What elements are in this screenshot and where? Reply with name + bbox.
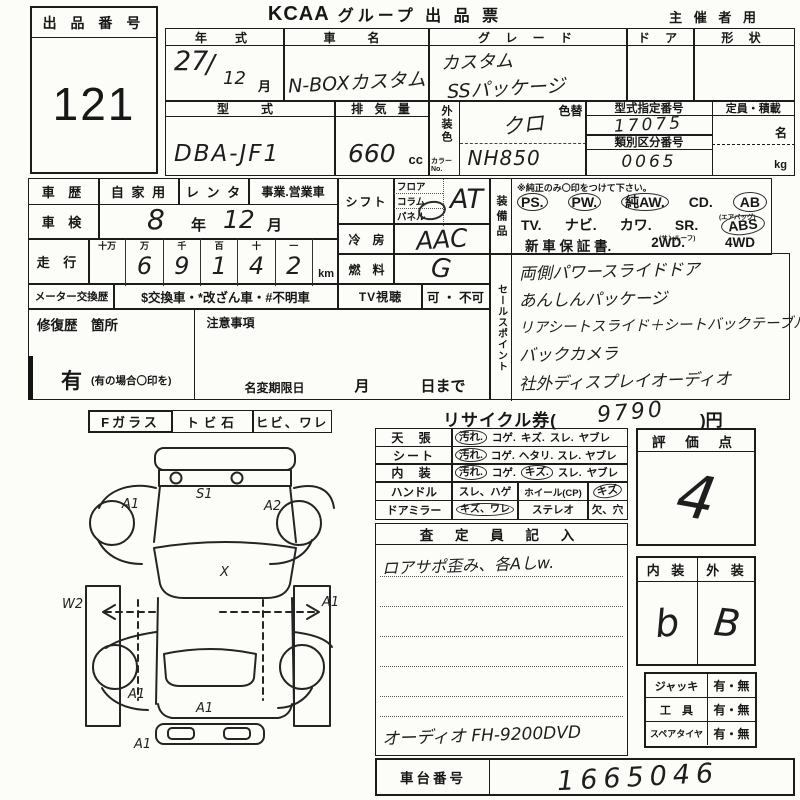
repair-hint: (有の場合〇印を) [91, 373, 172, 388]
exterior-grade-cell: B [698, 582, 756, 664]
cabin-left-side [156, 598, 158, 704]
equip-2wd: 2WD. [651, 235, 685, 255]
cond-opt: ヤブレ [587, 465, 619, 480]
month-unit: 月 [258, 76, 271, 95]
name-change-until: 日まで [421, 375, 466, 396]
model-header: 型 式 [165, 100, 335, 117]
assessor-rule [380, 636, 623, 637]
door-header: ド ア [626, 28, 695, 46]
digit-value: 2 [276, 252, 312, 280]
damage-code-left-side: W2 [62, 597, 83, 612]
equipment-row1: PS. PW. 純AW. CD. AB [517, 192, 767, 212]
assessor-header: 査 定 員 記 入 [376, 524, 627, 545]
door-cell [626, 45, 695, 102]
assessor-box: 査 定 員 記 入 ロアサポ歪み、各Aしw. オーディオ FH-9200DVD [375, 523, 628, 756]
equipment-row3: 新 車 保 証 書. 2WD. 4WD [525, 235, 755, 255]
fuel-label: 燃 料 [338, 253, 395, 285]
displacement-header: 排 気 量 [335, 100, 430, 117]
cond-opt: ヤブレ [579, 430, 611, 445]
history-private: 自 家 用 [98, 178, 180, 205]
digit-col: 十万 [89, 239, 126, 286]
repair-yes: 有 [61, 365, 82, 395]
equipment-label: 装備品 [491, 179, 512, 256]
capacity-weight-cell: kg [712, 143, 796, 176]
grade-header: グ レ ー ド [428, 28, 628, 46]
cond-opt-circled: 汚れ. [455, 465, 487, 479]
front-right-fender [294, 486, 334, 508]
front-glass-label: Fガラス [88, 410, 173, 433]
inspection-label: 車 検 [28, 204, 100, 240]
organizer-label: 主 催 者 用 [645, 7, 760, 26]
cond-interior-label: 内 装 [375, 463, 453, 482]
auction-sheet: 出 品 番 号 121 KCAA グループ 出 品 票 主 催 者 用 年 式 … [0, 0, 800, 800]
capacity-person-unit: 名 [775, 124, 787, 141]
sheet-title-text: グループ 出 品 票 [338, 2, 502, 26]
year-slash: / [206, 50, 215, 80]
exterior-color-label-cell: 外装色 カラーNo. [428, 100, 460, 176]
assessor-rule [380, 716, 623, 717]
cond-mirror-options: キズ、ワレ [451, 500, 519, 520]
mileage-digit-columns: 十万 万 6 千 9 百 1 十 4 一 2 [89, 239, 313, 286]
chassis-box: 車台番号 1665046 [375, 758, 795, 796]
auction-number-label: 出 品 番 号 [32, 8, 156, 38]
rating-box: 評 価 点 4 [636, 428, 756, 546]
interior-grade-value: b [653, 600, 682, 646]
exterior-color-cell: 色替 クロ NH850 [459, 100, 587, 176]
year-header: 年 式 [165, 28, 285, 46]
car-name-header: 車 名 [283, 28, 430, 46]
rating-label: 評 価 点 [638, 430, 754, 452]
shape-header: 形 状 [693, 28, 795, 46]
jack-row: ジャッキ 有・無 [646, 674, 755, 698]
sales-item: あんしんパッケージ [519, 285, 668, 312]
cond-ceiling-label: 天 張 [375, 428, 453, 447]
cowl-circle-left [171, 473, 182, 484]
digit-value: 6 [126, 252, 162, 280]
sales-points-label: セールスポイント [491, 254, 512, 401]
tools-value: 有・無 [708, 698, 755, 721]
repair-label: 修復歴 箇所 [37, 314, 118, 334]
shift-cell: フロア コラム パネル AT [393, 178, 490, 225]
assessor-rule [380, 606, 623, 607]
caution-cell: 注意事項 名変期限日 月 日まで [194, 308, 491, 400]
brand-logo: KCAA [268, 3, 330, 26]
capacity-weight-unit: kg [774, 159, 787, 171]
sheet-title: KCAA グループ 出 品 票 [225, 2, 545, 26]
rear-left-wheel [93, 645, 137, 689]
damage-code-rear-bumper: A1 [133, 737, 151, 752]
accessories-box: ジャッキ 有・無 工 具 有・無 スペアタイヤ 有・無 [644, 672, 757, 748]
year-value: 27 [174, 46, 208, 77]
capacity-person-cell: 名 [712, 115, 796, 145]
assessor-rule [380, 666, 623, 667]
digit-unit: 千 [164, 239, 200, 252]
glass-crack: ヒビ、ワレ [252, 410, 332, 433]
damage-code-right-side: A1 [321, 595, 339, 610]
class-no-cell: 0065 [585, 149, 713, 176]
cond-opt: ヤブレ [585, 448, 617, 463]
car-name-cell: N-BOXカスタム [283, 45, 430, 102]
shift-label: シフト [338, 178, 395, 225]
equipment-row2: TV. ナビ. カワ. SR. ABS [521, 215, 765, 235]
front-bumper [155, 448, 295, 470]
cond-opt: キズ. [521, 430, 545, 445]
rear-right-wheel [280, 645, 324, 689]
digit-value: 4 [238, 252, 274, 280]
cond-ceiling-options: 汚れ. コゲ. キズ. スレ. ヤブレ [451, 428, 628, 447]
jack-value: 有・無 [708, 674, 755, 697]
sales-points-box: セールスポイント 両側パワースライドドア あんしんパッケージ リアシートスライド… [490, 253, 790, 400]
chassis-number: 1665046 [556, 758, 720, 797]
cond-wheel-label: ホイール(CP) [517, 482, 589, 501]
tools-row: 工 具 有・無 [646, 698, 755, 722]
assessor-rule [380, 576, 623, 577]
shift-value: AT [450, 184, 483, 215]
cond-opt: スレ. [558, 465, 582, 480]
sales-item: 社外ディスプレイオーディオ [519, 365, 732, 395]
spare-label: スペアタイヤ [646, 722, 708, 745]
inspection-month-unit: 月 [267, 214, 282, 235]
hood-right-edge [290, 486, 296, 542]
displacement-value: 660 [348, 139, 396, 168]
class-no-value: 0065 [621, 152, 676, 172]
cond-handle-options: スレ、ハゲ [451, 482, 519, 501]
type-no-cell: 17075 [585, 115, 713, 136]
inspection-month: 12 [223, 205, 255, 234]
digit-unit: 十万 [89, 239, 125, 252]
assessor-rule [380, 696, 623, 697]
digit-col: 万 6 [126, 239, 163, 286]
color-no-label: カラーNo. [431, 156, 459, 173]
cond-opt-circled: 汚れ. [455, 448, 487, 462]
auction-number-value: 121 [32, 38, 156, 170]
cond-opt-circled: キズ. [521, 465, 553, 479]
digit-unit: 一 [276, 239, 312, 252]
cond-mirror-label: ドアミラー [375, 500, 453, 520]
assessor-line1: ロアサポ歪み、各Aしw. [382, 549, 555, 579]
grade-box: 内 装 外 装 b B [636, 556, 756, 666]
history-label: 車 歴 [28, 178, 100, 205]
assessor-audio-line: オーディオ FH-9200DVD [382, 718, 582, 750]
mileage-label: 走 行 [28, 238, 90, 285]
shape-cell [693, 45, 795, 102]
equipment-box: 装備品 ※純正のみ〇印をつけて下さい。 PS. PW. 純AW. CD. AB … [490, 178, 772, 255]
digit-col: 一 2 [276, 239, 313, 286]
cond-opt: ヘタリ. [519, 448, 553, 463]
caution-label: 注意事項 [207, 314, 255, 331]
cond-handle-label: ハンドル [375, 482, 453, 501]
meter-label: メーター交換歴 [28, 283, 115, 310]
inspection-year-unit: 年 [191, 214, 206, 235]
name-change-month: 月 [355, 375, 370, 396]
digit-unit: 百 [201, 239, 237, 252]
mileage-grid: 十万 万 6 千 9 百 1 十 4 一 2 km [88, 238, 338, 285]
rear-window [164, 649, 256, 686]
fuel-value: G [430, 253, 453, 285]
displacement-cell: 660 cc [335, 116, 430, 176]
exterior-grade-value: B [712, 600, 743, 646]
left-rocker-panel [86, 586, 120, 726]
equip-sr: SR. [675, 217, 698, 233]
car-damage-diagram: A1 S1 A2 W2 X A1 A1 A1 A1 [60, 436, 340, 770]
tv-options: 可 ・ 不可 [421, 283, 490, 310]
damage-code-front-right: A2 [263, 499, 281, 514]
equip-ps: PS. [517, 193, 548, 211]
grade-cell: カスタム SSパッケージ [428, 45, 628, 102]
cond-stereo-options: 欠、穴 [587, 500, 628, 520]
rear-light-right [224, 728, 250, 739]
digit-unit: 万 [126, 239, 162, 252]
rear-light-left [168, 728, 194, 739]
history-rental: レ ン タ [178, 178, 250, 205]
car-name-value: N-BOXカスタム [287, 64, 426, 98]
model-cell: DBA-JF1 [165, 116, 335, 176]
history-business: 事業.営業車 [248, 178, 338, 205]
color-change-label: 色替 [558, 102, 582, 119]
rating-score: 4 [671, 460, 721, 536]
meter-note: $交換車・*改ざん車・#不明車 [113, 283, 338, 310]
equip-abs: ABS [721, 213, 766, 238]
equip-warranty: 新 車 保 証 書. [525, 235, 611, 255]
cond-seat-options: 汚れ. コゲ. ヘタリ. スレ. ヤブレ [451, 446, 628, 465]
spare-row: スペアタイヤ 有・無 [646, 722, 755, 745]
grade-line1: カスタム [441, 46, 514, 74]
exterior-grade-label: 外 装 [698, 558, 756, 582]
cabin-bottom [158, 704, 292, 718]
jack-label: ジャッキ [646, 674, 708, 697]
name-change-label: 名変期限日 [245, 379, 305, 396]
equip-pw: PW. [568, 193, 602, 211]
color-cell-divider [460, 143, 586, 144]
displacement-unit: cc [409, 152, 423, 167]
ac-cell: AAC [393, 223, 490, 255]
cond-opt: スレ. [550, 430, 574, 445]
cond-opt-circled: 汚れ. [455, 430, 487, 444]
digit-value: 9 [164, 252, 200, 280]
damage-code-rear-left: A1 [127, 687, 145, 702]
cond-opt: コゲ. [492, 465, 516, 480]
tools-label: 工 具 [646, 698, 708, 721]
cond-interior-options: 汚れ. コゲ. キズ. スレ. ヤブレ [451, 463, 628, 482]
digit-col: 十 4 [238, 239, 275, 286]
repair-cell: 修復歴 箇所 有 (有の場合〇印を) [28, 308, 195, 400]
cond-stereo-label: ステレオ [517, 500, 589, 520]
cowl-circle-right [232, 473, 243, 484]
spare-value: 有・無 [708, 722, 755, 745]
mileage-unit: km [318, 268, 334, 280]
cond-seat-label: シート [375, 446, 453, 465]
equip-tv: TV. [521, 217, 542, 233]
digit-value: 1 [201, 252, 237, 280]
cond-opt-circled: キズ、ワレ [456, 503, 514, 517]
hood-left-edge [154, 486, 160, 542]
sales-item: バックカメラ [519, 340, 618, 366]
front-right-wheel [277, 501, 321, 545]
digit-col: 千 9 [164, 239, 201, 286]
equip-4wd: 4WD [725, 235, 755, 255]
ac-label: 冷 房 [338, 223, 395, 255]
chassis-label: 車台番号 [377, 760, 490, 794]
cond-opt-circled: キズ [592, 483, 623, 501]
shift-opt-floor: フロア [394, 179, 443, 194]
model-value: DBA-JF1 [174, 141, 280, 167]
fuel-cell: G [393, 253, 490, 285]
recycle-amount: 9790 [596, 397, 666, 428]
damage-code-tailgate: A1 [195, 701, 213, 716]
equip-aw: 純AW. [621, 193, 669, 211]
color-no-value: NH850 [468, 146, 541, 170]
sales-item: 両側パワースライドドア [519, 256, 700, 285]
damage-code-front-left: A1 [121, 497, 139, 512]
repair-cell-notch [28, 356, 33, 400]
equip-kawa: カワ. [620, 215, 652, 235]
color-value: クロ [500, 107, 545, 141]
cond-opt: スレ. [557, 448, 581, 463]
rating-score-area: 4 [638, 452, 754, 544]
inspection-cell: 8 年 12 月 [98, 204, 338, 240]
equip-cd: CD. [689, 194, 713, 210]
digit-col: 百 1 [201, 239, 238, 286]
year-cell: 27 / 12 月 [165, 45, 285, 102]
month-value: 12 [223, 68, 246, 89]
grade-line2: SSパッケージ [446, 70, 565, 103]
cond-opt: コゲ. [492, 430, 516, 445]
inspection-year: 8 [147, 203, 165, 236]
auction-number-box: 出 品 番 号 121 [30, 6, 158, 174]
cond-wheel-options: キズ [587, 482, 628, 501]
cond-opt: コゲ. [491, 448, 515, 463]
digit-unit: 十 [238, 239, 274, 252]
damage-code-windshield: X [219, 565, 230, 580]
equip-navi: ナビ. [565, 215, 597, 235]
tv-label: TV視聴 [338, 283, 423, 310]
interior-grade-label: 内 装 [638, 558, 698, 582]
equip-ab: AB [733, 192, 767, 212]
interior-grade-cell: b [638, 582, 698, 664]
ac-value: AAC [415, 223, 469, 256]
sales-item: リアシートスライド＋シートバックテーブル [519, 311, 800, 337]
damage-code-hood: S1 [196, 487, 213, 502]
exterior-color-label: 外装色 [438, 105, 454, 144]
glass-stone-chip: トビ石 [171, 410, 254, 433]
